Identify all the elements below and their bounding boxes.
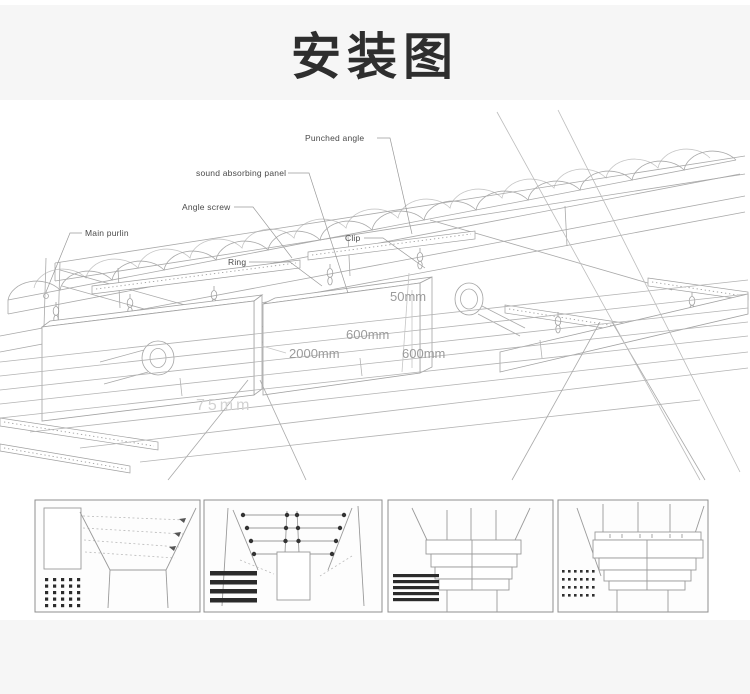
hoist-cables — [497, 110, 740, 480]
speaker-box — [277, 552, 310, 600]
page-title: 安装图 — [291, 17, 459, 89]
thumbnail-4 — [558, 500, 708, 612]
label-clip: Clip — [345, 233, 361, 243]
leader-punched-angle — [377, 138, 412, 234]
leader-main-purlin — [46, 233, 82, 292]
label-sound-absorbing-panel: sound absorbing panel — [196, 168, 286, 178]
footer-band — [0, 620, 750, 694]
label-main-purlin: Main purlin — [85, 228, 129, 238]
dim-panel-height: 600mm — [346, 327, 389, 342]
dim-panel-thickness: 50mm — [390, 289, 426, 304]
thumbnail-1 — [35, 500, 200, 612]
thumbnail-3 — [388, 500, 553, 612]
dim-panel-spacing: 600mm — [402, 346, 445, 361]
dim-panel-length: 2000mm — [289, 346, 340, 361]
screen-rectangle — [44, 508, 81, 569]
leader-angle-screw — [234, 207, 292, 258]
label-ring: Ring — [228, 257, 246, 267]
header-band: 安装图 — [0, 5, 750, 100]
dim-bottom: 75mm — [196, 397, 252, 414]
label-angle-screw: Angle screw — [182, 202, 231, 212]
leader-sound-absorbing-panel — [288, 173, 348, 293]
thumbnail-2 — [204, 500, 382, 612]
detail-thumbnails — [0, 494, 750, 620]
label-punched-angle: Punched angle — [305, 133, 364, 143]
installation-diagram: Punched angle sound absorbing panel Angl… — [0, 100, 750, 485]
